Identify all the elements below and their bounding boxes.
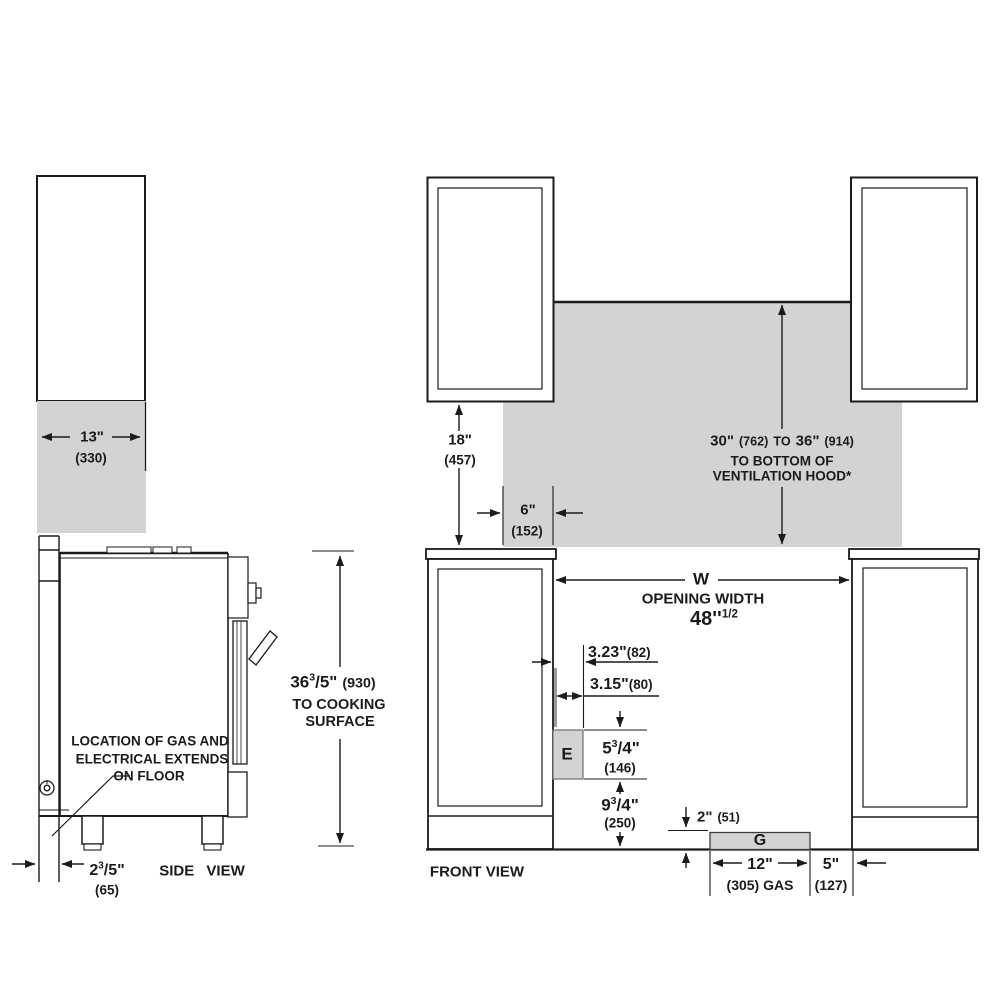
installation-diagram: 13" (330) 363/5"(930) TO COOKING SURFACE…: [0, 0, 1000, 1000]
side-counter-height-caption-2: SURFACE: [305, 715, 374, 730]
hood-side-clearance-value: 6": [520, 503, 535, 518]
dim-e-height-value: 53/4": [602, 740, 640, 757]
gas-height-value: 2": [697, 809, 712, 826]
opening-width-fraction: 1/2: [722, 607, 738, 620]
counter-height-whole: 36: [290, 672, 309, 691]
hood-clearance-line-1: 30"(762)TO36"(914): [710, 434, 854, 449]
hood-clearance-to: TO: [773, 435, 790, 449]
dim-315-label: 3.15"(80): [590, 677, 653, 693]
side-counter-height-caption-1: TO COOKING: [292, 698, 385, 713]
dim-gas-height-label: 2"(51): [697, 810, 740, 825]
dim-e-floor-value: 93/4": [601, 797, 639, 814]
front-left-base-cabinet: [426, 549, 556, 849]
hood-clearance-metric-1: (762): [739, 435, 768, 449]
side-view-title: SIDE VIEW: [159, 864, 245, 879]
gas-note-line-3: ON FLOOR: [113, 769, 184, 783]
side-cabinet-depth-metric: (330): [75, 451, 107, 465]
side-cabinet-depth-value: 13": [80, 430, 104, 445]
side-counter-height-value: 363/5"(930): [290, 673, 375, 690]
hood-clearance-zone: [503, 301, 902, 547]
front-right-wall-cabinet: [851, 178, 977, 402]
side-wall-offset-metric: (65): [95, 883, 119, 897]
gas-note-line-1: LOCATION OF GAS AND: [71, 734, 229, 748]
opening-width-number: 48'': [690, 608, 722, 630]
dim-gas-width-metric: (305) GAS: [727, 878, 794, 892]
dim-323-metric: (82): [627, 645, 651, 660]
counter-height-metric: (930): [342, 675, 375, 691]
side-wall: [39, 536, 69, 882]
range-side-profile: [39, 547, 277, 850]
gas-connection-icon: [40, 780, 54, 795]
dim-e-floor-metric: (250): [604, 816, 636, 830]
dim-gas-side-metric: (127): [815, 878, 848, 892]
front-left-wall-cabinet: [428, 178, 554, 402]
hood-clearance-metric-2: (914): [824, 435, 853, 449]
opening-width-caption: OPENING WIDTH: [642, 592, 765, 607]
side-wall-cabinet: [37, 176, 145, 401]
dim-e-height-metric: (146): [604, 761, 636, 775]
e-floor-denominator: /4": [617, 796, 639, 815]
opening-width-letter: W: [693, 571, 709, 588]
wall-cabinet-height-value: 18": [448, 433, 472, 448]
front-view-drawing: [426, 178, 979, 897]
gas-height-metric: (51): [717, 811, 739, 825]
hood-clearance-line-3: VENTILATION HOOD*: [713, 469, 852, 483]
hood-clearance-value-1: 30": [710, 433, 734, 450]
front-right-base-cabinet: [849, 549, 979, 850]
cabinet-depth-zone: [37, 401, 146, 533]
gas-box-letter: G: [754, 833, 766, 849]
opening-width-value: 48''1/2: [690, 609, 738, 629]
diagram-linework: [0, 0, 1000, 1000]
electrical-box-letter: E: [561, 746, 572, 763]
wall-offset-whole: 2: [89, 862, 98, 879]
front-view-title: FRONT VIEW: [430, 865, 524, 880]
dim-315-metric: (80): [629, 677, 653, 692]
oven-door-handle: [249, 631, 277, 665]
wall-cabinet-height-metric: (457): [444, 453, 476, 467]
dim-323-value: 3.23": [588, 644, 627, 661]
counter-height-denominator: /5": [315, 672, 337, 691]
gas-note-line-2: ELECTRICAL EXTENDS: [76, 752, 229, 766]
dim-gas-side-value: 5": [823, 857, 839, 873]
wall-offset-denominator: /5": [104, 862, 125, 879]
hood-clearance-value-2: 36": [796, 433, 820, 450]
side-wall-offset-value: 23/5": [89, 863, 124, 879]
hood-clearance-line-2: TO BOTTOM OF: [731, 454, 834, 468]
dim-315-value: 3.15": [590, 676, 629, 693]
dim-323-label: 3.23"(82): [588, 645, 651, 661]
hood-side-clearance-metric: (152): [511, 524, 543, 538]
dim-gas-width-value: 12": [747, 857, 772, 873]
e-height-denominator: /4": [618, 739, 640, 758]
